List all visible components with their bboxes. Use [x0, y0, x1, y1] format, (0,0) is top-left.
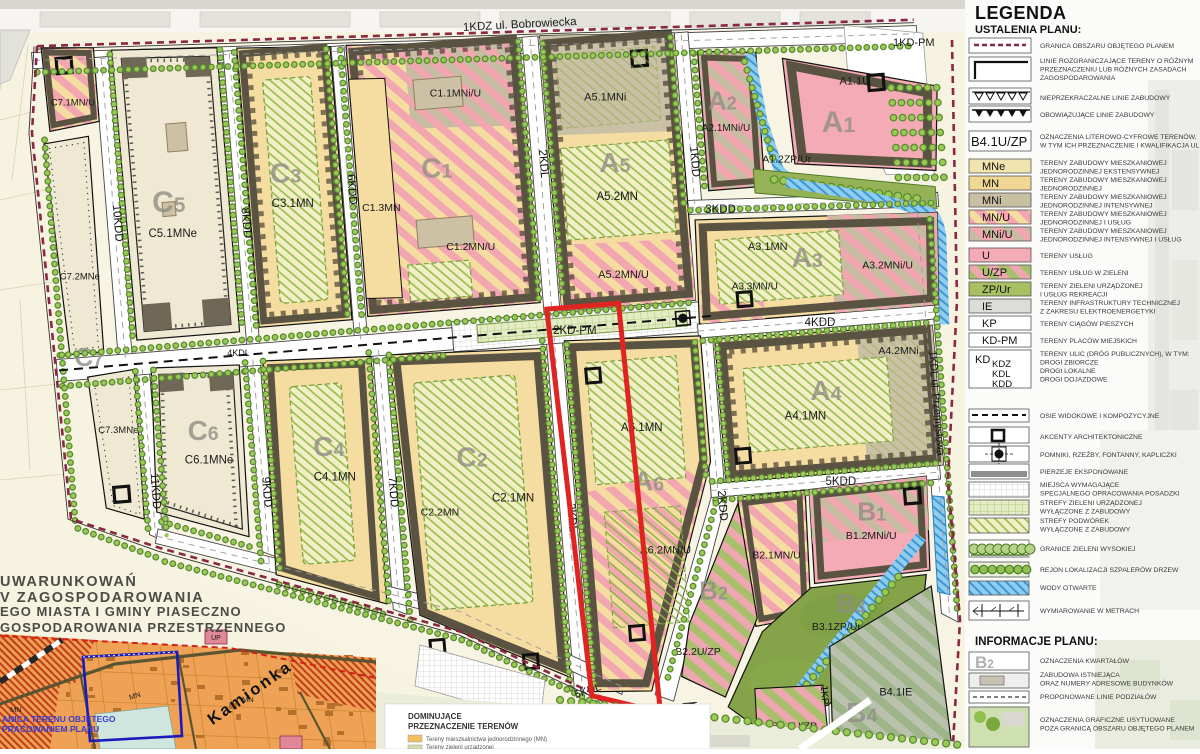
svg-text:INFORMACJE PLANU:: INFORMACJE PLANU:	[975, 636, 1098, 648]
svg-text:LINIE ROZGRANICZAJĄCE TERENY O: LINIE ROZGRANICZAJĄCE TERENY O RÓŻNYM	[1040, 56, 1194, 65]
svg-text:B4.1IE: B4.1IE	[879, 686, 912, 698]
svg-text:1KD-PM: 1KD-PM	[893, 37, 935, 49]
svg-text:MN/U: MN/U	[982, 212, 1010, 224]
svg-text:OZNACZENIA GRAFICZNE USYTUOWAN: OZNACZENIA GRAFICZNE USYTUOWANE	[1040, 717, 1175, 724]
svg-text:C7.1MN/U: C7.1MN/U	[51, 97, 95, 108]
svg-text:1KP: 1KP	[818, 685, 831, 705]
svg-text:4KDL: 4KDL	[227, 348, 250, 358]
svg-text:I USŁUG REKREACJI: I USŁUG REKREACJI	[1040, 292, 1107, 299]
svg-text:A1.1U: A1.1U	[839, 76, 870, 88]
svg-text:ZABUDOWA ISTNIEJĄCA: ZABUDOWA ISTNIEJĄCA	[1040, 672, 1120, 679]
svg-text:TERENY INFRASTRUKTURY TECHNICZ: TERENY INFRASTRUKTURY TECHNICZNEJ	[1040, 300, 1180, 307]
svg-text:MN: MN	[10, 705, 22, 714]
svg-text:6KDD: 6KDD	[344, 174, 358, 206]
svg-text:C1.2MN/U: C1.2MN/U	[446, 241, 495, 253]
svg-text:ANICA TERENU OBJĘTEGO: ANICA TERENU OBJĘTEGO	[2, 714, 116, 724]
svg-text:MNe: MNe	[982, 161, 1005, 173]
svg-text:A2.1MNi/U: A2.1MNi/U	[702, 123, 750, 134]
svg-text:C7.3MNe: C7.3MNe	[98, 425, 138, 436]
svg-text:1KDD: 1KDD	[687, 146, 701, 178]
svg-text:ZP/Ur: ZP/Ur	[982, 284, 1011, 296]
svg-text:B1.2MNi/U: B1.2MNi/U	[846, 530, 897, 542]
svg-text:B3.1ZP/Ur: B3.1ZP/Ur	[812, 621, 862, 633]
svg-text:A4.2MNi: A4.2MNi	[878, 345, 918, 357]
svg-text:DOMINUJĄCE: DOMINUJĄCE	[408, 712, 462, 721]
svg-text:GOSPODAROWANIA PRZESTRZENNEGO: GOSPODAROWANIA PRZESTRZENNEGO	[0, 620, 286, 635]
svg-text:TERENY ZIELENI URZĄDZONEJ: TERENY ZIELENI URZĄDZONEJ	[1040, 283, 1143, 290]
svg-text:TERENY USŁUG W ZIELENI: TERENY USŁUG W ZIELENI	[1040, 270, 1129, 277]
svg-text:4KDD: 4KDD	[805, 317, 836, 329]
svg-text:MNi/U: MNi/U	[982, 229, 1013, 241]
svg-text:2KDD: 2KDD	[715, 490, 729, 522]
svg-text:OZNACZENIA LITEROWO-CYFROWE TE: OZNACZENIA LITEROWO-CYFROWE TERENÓW,	[1040, 132, 1197, 141]
svg-text:A5.1MNi: A5.1MNi	[584, 92, 626, 104]
svg-text:W TYM ICH PRZEZNACZENIE I KWAL: W TYM ICH PRZEZNACZENIE I KWALIFIKACJA U…	[1040, 143, 1200, 150]
svg-text:C2.1MN: C2.1MN	[492, 492, 534, 504]
svg-text:TERENY ZABUDOWY MIESZKANIOWEJ: TERENY ZABUDOWY MIESZKANIOWEJ	[1040, 160, 1167, 167]
svg-text:A3.1MN: A3.1MN	[748, 241, 788, 253]
svg-text:EGO MIASTA I GMINY PIASECZNO: EGO MIASTA I GMINY PIASECZNO	[0, 604, 242, 619]
svg-text:REJON LOKALIZACJI SZPALERÓW DR: REJON LOKALIZACJI SZPALERÓW DRZEW	[1040, 565, 1179, 574]
svg-text:JEDNORODZINNEJ INTENSYWNEJ: JEDNORODZINNEJ INTENSYWNEJ	[1040, 203, 1153, 210]
svg-text:KDD: KDD	[992, 379, 1012, 390]
svg-text:U: U	[982, 250, 990, 262]
svg-text:TERENY ZABUDOWY MIESZKANIOWEJ: TERENY ZABUDOWY MIESZKANIOWEJ	[1040, 177, 1167, 184]
svg-text:9KDD: 9KDD	[259, 476, 273, 508]
svg-text:Z ZAKRESU ELEKTROENERGETYKI: Z ZAKRESU ELEKTROENERGETYKI	[1040, 309, 1156, 316]
svg-text:3KDD: 3KDD	[705, 204, 736, 216]
svg-text:C1.3MN: C1.3MN	[362, 202, 401, 214]
svg-text:KD-PM: KD-PM	[982, 335, 1017, 347]
svg-text:UP: UP	[211, 635, 221, 642]
svg-text:TERENY USŁUG: TERENY USŁUG	[1040, 253, 1093, 260]
svg-text:PROPONOWANE LINIE PODZIAŁÓW: PROPONOWANE LINIE PODZIAŁÓW	[1040, 692, 1157, 701]
svg-text:5KDD: 5KDD	[825, 476, 856, 488]
svg-text:JEDNORODZINNEJ I USŁUG: JEDNORODZINNEJ I USŁUG	[1040, 220, 1131, 227]
svg-text:C3.1MN: C3.1MN	[272, 198, 314, 210]
svg-text:U/ZP: U/ZP	[982, 267, 1007, 279]
svg-text:Tereny mieszkalnictwa jednorod: Tereny mieszkalnictwa jednorodzinnego (M…	[426, 737, 547, 743]
svg-text:TERENY ZABUDOWY MIESZKANIOWEJ: TERENY ZABUDOWY MIESZKANIOWEJ	[1040, 194, 1167, 201]
svg-text:STREFY PODWÓREK: STREFY PODWÓREK	[1040, 516, 1109, 525]
svg-text:8KDD: 8KDD	[239, 207, 253, 239]
svg-text:Tereny zieleni urządzonej: Tereny zieleni urządzonej	[426, 745, 494, 749]
svg-text:TERENY ZABUDOWY MIESZKANIOWEJ: TERENY ZABUDOWY MIESZKANIOWEJ	[1040, 228, 1167, 235]
svg-text:OZNACZENIA KWARTAŁÓW: OZNACZENIA KWARTAŁÓW	[1040, 656, 1130, 665]
svg-text:A4.1MN: A4.1MN	[785, 411, 827, 423]
svg-text:TERENY ULIC (DRÓG PUBLICZNYCH): TERENY ULIC (DRÓG PUBLICZNYCH), W TYM:	[1040, 349, 1190, 358]
svg-text:LEGENDA: LEGENDA	[975, 3, 1067, 23]
svg-text:A5.2MN/U: A5.2MN/U	[598, 269, 649, 281]
svg-text:OSIE WIDOKOWE I KOMPOZYCYJNE: OSIE WIDOKOWE I KOMPOZYCYJNE	[1040, 413, 1160, 420]
svg-text:C7.2MNe: C7.2MNe	[60, 271, 100, 282]
svg-text:MNi: MNi	[982, 195, 1002, 207]
svg-text:GRANICE ZIELENI WYSOKIEJ: GRANICE ZIELENI WYSOKIEJ	[1040, 546, 1136, 553]
svg-text:KP: KP	[982, 318, 997, 330]
svg-text:7KDD: 7KDD	[386, 476, 400, 508]
svg-text:2KD-PM: 2KD-PM	[553, 325, 596, 337]
svg-text:C4.1MN: C4.1MN	[314, 472, 356, 484]
svg-text:C5.1MNe: C5.1MNe	[148, 228, 197, 240]
svg-text:MN: MN	[242, 695, 254, 704]
svg-text:STREFY ZIELENI URZĄDZONEJ: STREFY ZIELENI URZĄDZONEJ	[1040, 500, 1142, 507]
svg-text:SPECJALNEGO OPRACOWANIA POSADZ: SPECJALNEGO OPRACOWANIA POSADZKI	[1040, 491, 1180, 498]
svg-text:USTALENIA PLANU:: USTALENIA PLANU:	[975, 24, 1081, 36]
svg-text:TERENY PLACÓW MIEJSKICH: TERENY PLACÓW MIEJSKICH	[1040, 336, 1137, 345]
svg-text:JEDNORODZINNEJ INTENSYWNEJ I U: JEDNORODZINNEJ INTENSYWNEJ I USŁUG	[1040, 237, 1182, 244]
svg-text:ORAZ NUMERY ADRESOWE BUDYNKÓW: ORAZ NUMERY ADRESOWE BUDYNKÓW	[1040, 679, 1174, 688]
svg-text:C6.1MNe: C6.1MNe	[185, 455, 234, 467]
svg-text:TERENY ZABUDOWY MIESZKANIOWEJ: TERENY ZABUDOWY MIESZKANIOWEJ	[1040, 211, 1167, 218]
svg-text:B2.1MN/U: B2.1MN/U	[752, 549, 800, 561]
svg-text:JEDNORODZINNEJ EKSTENSYWNEJ: JEDNORODZINNEJ EKSTENSYWNEJ	[1040, 169, 1159, 176]
svg-text:PRZEZNACZENIE TERENÓW: PRZEZNACZENIE TERENÓW	[408, 722, 519, 731]
svg-text:GRANICA OBSZARU OBJĘTEGO PLANE: GRANICA OBSZARU OBJĘTEGO PLANEM	[1040, 43, 1174, 50]
svg-text:DROGI ZBIORCZE: DROGI ZBIORCZE	[1040, 360, 1099, 367]
svg-text:A1.2ZP/Ur: A1.2ZP/Ur	[762, 153, 812, 165]
svg-text:PRAĆOWANIEM PLANU: PRAĆOWANIEM PLANU	[2, 723, 99, 734]
svg-text:C2.2MN: C2.2MN	[421, 506, 460, 518]
svg-text:JEDNORODZINNEJ: JEDNORODZINNEJ	[1040, 186, 1102, 193]
svg-text:A3.3MN/U: A3.3MN/U	[732, 281, 778, 292]
svg-text:WYŁĄCZONE Z ZABUDOWY: WYŁĄCZONE Z ZABUDOWY	[1040, 527, 1131, 534]
svg-text:PIERZEJE EKSPONOWANE: PIERZEJE EKSPONOWANE	[1040, 469, 1129, 476]
svg-text:IE: IE	[982, 301, 992, 313]
svg-text:OBOWIĄZUJĄCE LINIE ZABUDOWY: OBOWIĄZUJĄCE LINIE ZABUDOWY	[1040, 112, 1155, 119]
svg-text:WODY OTWARTE: WODY OTWARTE	[1040, 585, 1097, 592]
svg-text:POZA GRANICĄ OBSZARU OBJĘTEGO: POZA GRANICĄ OBSZARU OBJĘTEGO PLANEM	[1040, 726, 1195, 733]
svg-text:TERENY CIĄGÓW PIESZYCH: TERENY CIĄGÓW PIESZYCH	[1040, 319, 1134, 328]
svg-text:KD: KD	[975, 354, 990, 366]
svg-text:MIEJSCA WYMAGAJĄCE: MIEJSCA WYMAGAJĄCE	[1040, 482, 1120, 489]
svg-text:C1.1MNi/U: C1.1MNi/U	[430, 88, 481, 100]
svg-text:A5.2MN: A5.2MN	[596, 191, 638, 203]
svg-text:POMNIKI, RZEŹBY, FONTANNY, KAP: POMNIKI, RZEŹBY, FONTANNY, KAPLICZKI	[1040, 450, 1177, 459]
svg-text:A6.1MN: A6.1MN	[621, 422, 663, 434]
svg-text:A3.2MNi/U: A3.2MNi/U	[862, 260, 913, 272]
svg-text:UWARUNKOWAŃ: UWARUNKOWAŃ	[0, 573, 137, 590]
svg-text:DROGI DOJAZDOWE: DROGI DOJAZDOWE	[1040, 377, 1108, 384]
svg-text:WYŁĄCZONE Z ZABUDOWY: WYŁĄCZONE Z ZABUDOWY	[1040, 509, 1131, 516]
svg-text:2KDL: 2KDL	[536, 149, 550, 179]
svg-text:A6.2MN/U: A6.2MN/U	[640, 544, 691, 556]
svg-text:NIEPRZEKRACZALNE LINIE ZABUDOW: NIEPRZEKRACZALNE LINIE ZABUDOWY	[1040, 95, 1171, 102]
svg-text:B4.1U/ZP: B4.1U/ZP	[971, 134, 1027, 149]
svg-text:ZAGOSPODAROWANIA: ZAGOSPODAROWANIA	[1040, 75, 1116, 82]
svg-text:MN: MN	[982, 178, 999, 190]
svg-text:PRZEZNACZENIU LUB RÓŻNYCH ZASA: PRZEZNACZENIU LUB RÓŻNYCH ZASADACH	[1040, 65, 1187, 74]
svg-text:B2.2U/ZP: B2.2U/ZP	[675, 646, 721, 658]
svg-text:DROGI LOKALNE: DROGI LOKALNE	[1040, 368, 1096, 375]
svg-text:AKCENTY ARCHITEKTONICZNE: AKCENTY ARCHITEKTONICZNE	[1040, 434, 1143, 441]
svg-text:WYMIAROWANIE W METRACH: WYMIAROWANIE W METRACH	[1040, 608, 1139, 615]
